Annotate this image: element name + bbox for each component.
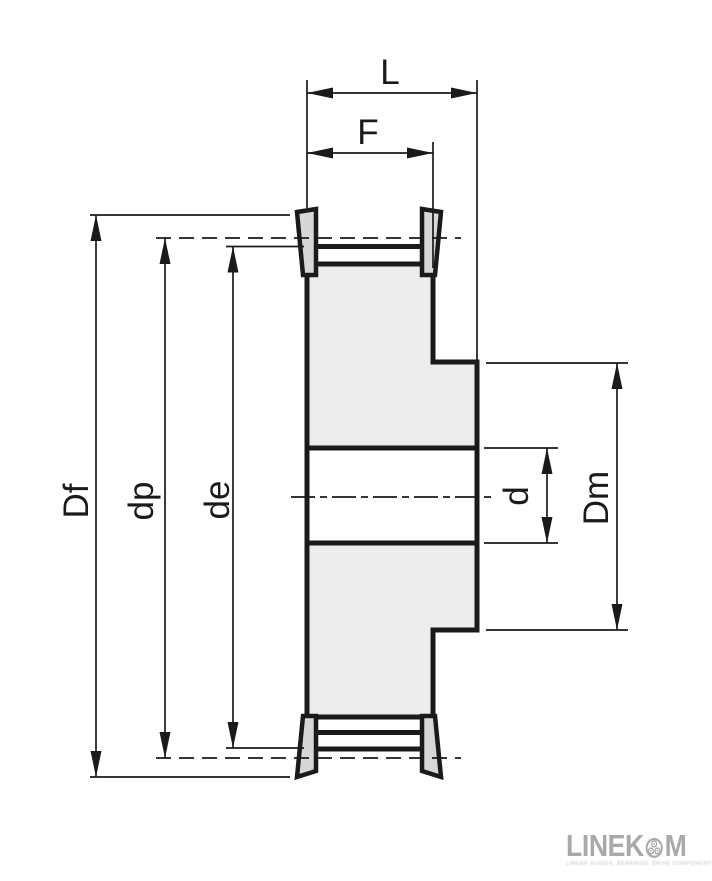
arrow-icon	[160, 238, 171, 264]
arrow-icon	[91, 751, 102, 777]
arrow-icon	[612, 363, 623, 389]
dimension-F: F	[307, 113, 433, 159]
arrow-icon	[91, 215, 102, 241]
arrow-icon	[451, 88, 477, 99]
label-de: de	[198, 481, 237, 520]
arrow-icon	[307, 88, 333, 99]
label-F: F	[357, 113, 378, 152]
dimension-Df: Df	[57, 215, 102, 777]
brand-text-right: M	[665, 832, 687, 860]
arrow-icon	[228, 247, 239, 273]
flange-top-right	[422, 209, 441, 275]
arrow-icon	[160, 732, 171, 758]
arrow-icon	[407, 148, 433, 159]
brand-tagline: LINEAR GUIDES, BEARINGS, DRIVE COMPONENT…	[566, 861, 699, 867]
pulley-technical-drawing: L F Df dp de d Dm	[0, 0, 712, 881]
dimension-d: d	[497, 448, 553, 543]
brand-logo: LINEK M LINEAR GUIDES, BEARINGS, DRIVE C…	[566, 832, 706, 867]
dimension-Dm: Dm	[577, 363, 623, 630]
flange-bottom-right	[422, 716, 441, 777]
label-dp: dp	[122, 482, 161, 521]
arrow-icon	[228, 722, 239, 748]
flange-bottom-left	[297, 716, 316, 777]
brand-text-left: LINEK	[566, 832, 644, 860]
dimension-L: L	[307, 53, 477, 99]
label-Df: Df	[57, 483, 96, 518]
arrow-icon	[542, 448, 553, 474]
label-Dm: Dm	[577, 471, 616, 525]
flange-top-left	[297, 209, 316, 275]
label-L: L	[380, 53, 399, 92]
pulley-body	[297, 209, 480, 777]
dimension-de: de	[198, 247, 239, 749]
arrow-icon	[542, 517, 553, 543]
arrow-icon	[307, 148, 333, 159]
label-d: d	[497, 486, 536, 505]
roller-bearing-icon	[645, 836, 663, 859]
bore-band	[310, 451, 475, 541]
dimension-dp: dp	[122, 238, 171, 758]
brand-wordmark: LINEK M	[566, 832, 686, 860]
arrow-icon	[612, 604, 623, 630]
